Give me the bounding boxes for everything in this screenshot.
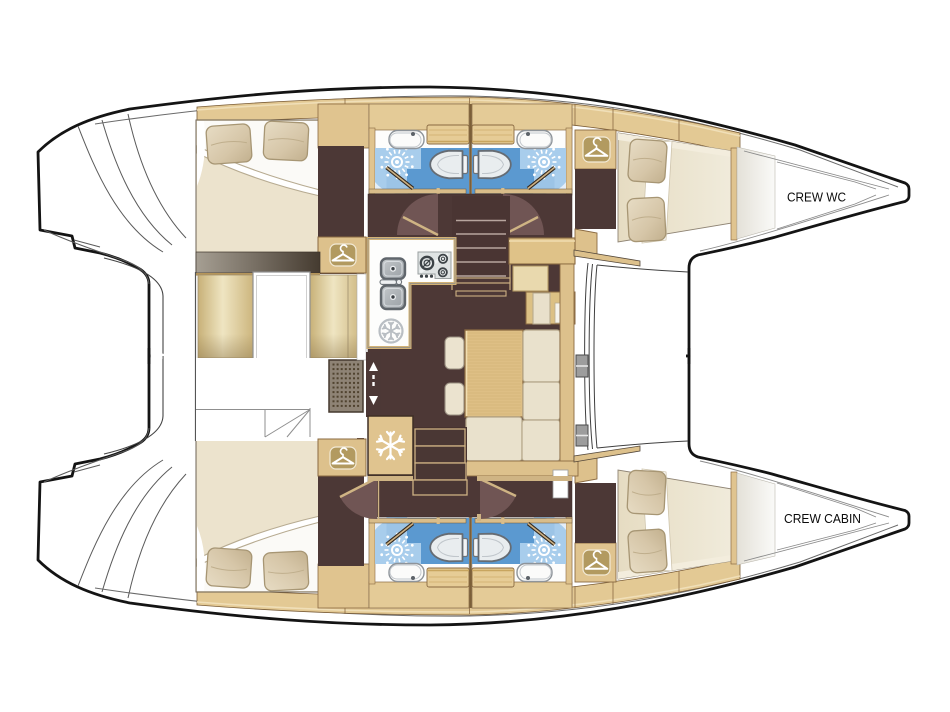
svg-text:CREW CABIN: CREW CABIN [784, 511, 861, 526]
svg-text:CREW WC: CREW WC [787, 189, 846, 204]
